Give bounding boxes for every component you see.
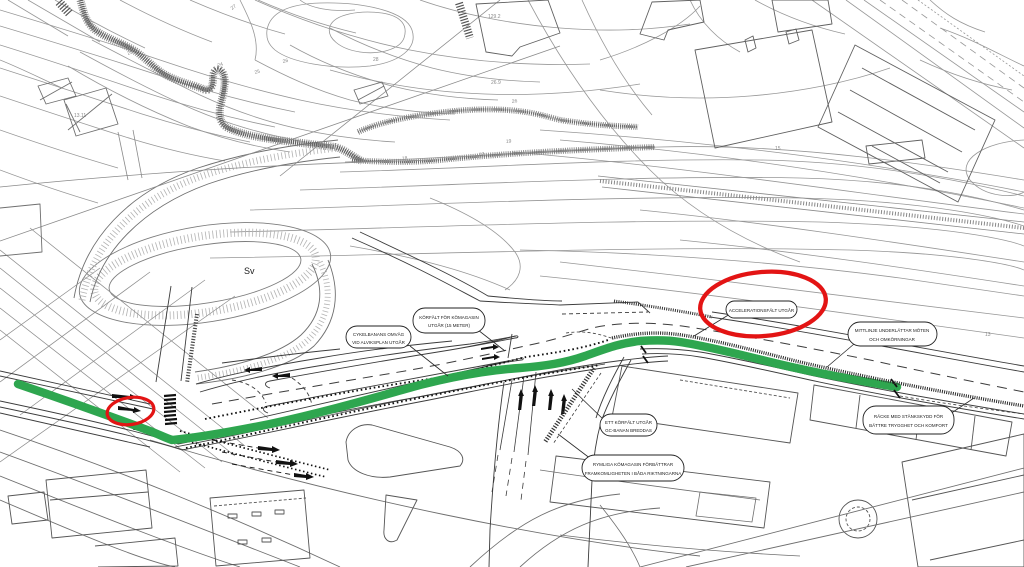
svg-text:Sv: Sv xyxy=(244,266,255,276)
svg-text:129.2: 129.2 xyxy=(488,14,501,20)
svg-text:26: 26 xyxy=(511,98,518,105)
svg-text:BÄTTRE TRYGGHET OCH KOMFORT: BÄTTRE TRYGGHET OCH KOMFORT xyxy=(869,422,948,428)
svg-text:RÄCKE MED STÄNKSKYDD FÖR: RÄCKE MED STÄNKSKYDD FÖR xyxy=(874,413,944,419)
svg-text:13: 13 xyxy=(985,332,991,338)
svg-text:19: 19 xyxy=(506,139,512,145)
svg-text:ACCELERATIONSFÄLT UTGÅR: ACCELERATIONSFÄLT UTGÅR xyxy=(729,307,795,313)
svg-text:RYMLIGA KÖMAGASIN FÖRBÄTTRAR: RYMLIGA KÖMAGASIN FÖRBÄTTRAR xyxy=(593,461,674,467)
svg-text:26: 26 xyxy=(282,58,289,65)
svg-text:GC-BANAN BREDDAS: GC-BANAN BREDDAS xyxy=(605,428,652,433)
svg-text:27: 27 xyxy=(230,3,238,11)
svg-text:25: 25 xyxy=(254,69,261,76)
svg-text:FRAMKOMLIGHETEN I BÅDA RIKTNIN: FRAMKOMLIGHETEN I BÅDA RIKTNINGARNA xyxy=(585,470,682,476)
svg-text:15: 15 xyxy=(775,146,781,152)
svg-text:CYKELBANANS OMVÄG: CYKELBANANS OMVÄG xyxy=(353,331,405,337)
svg-text:KÖRFÄLT FÖR KÖMAGASIN: KÖRFÄLT FÖR KÖMAGASIN xyxy=(419,314,479,320)
svg-text:VID ALVIKSPLAN UTGÅR: VID ALVIKSPLAN UTGÅR xyxy=(352,339,405,345)
svg-text:OCH OMKÖRNINGAR: OCH OMKÖRNINGAR xyxy=(869,336,916,342)
svg-text:MITTLINJE UNDERLÄTTAR MÖTEN: MITTLINJE UNDERLÄTTAR MÖTEN xyxy=(855,327,929,333)
svg-text:ETT KÖRFÄLT UTGÅR: ETT KÖRFÄLT UTGÅR xyxy=(605,419,653,425)
svg-text:28: 28 xyxy=(373,57,379,63)
svg-text:UTGÅR (15 METER): UTGÅR (15 METER) xyxy=(428,322,471,328)
svg-text:26.9: 26.9 xyxy=(491,80,501,86)
